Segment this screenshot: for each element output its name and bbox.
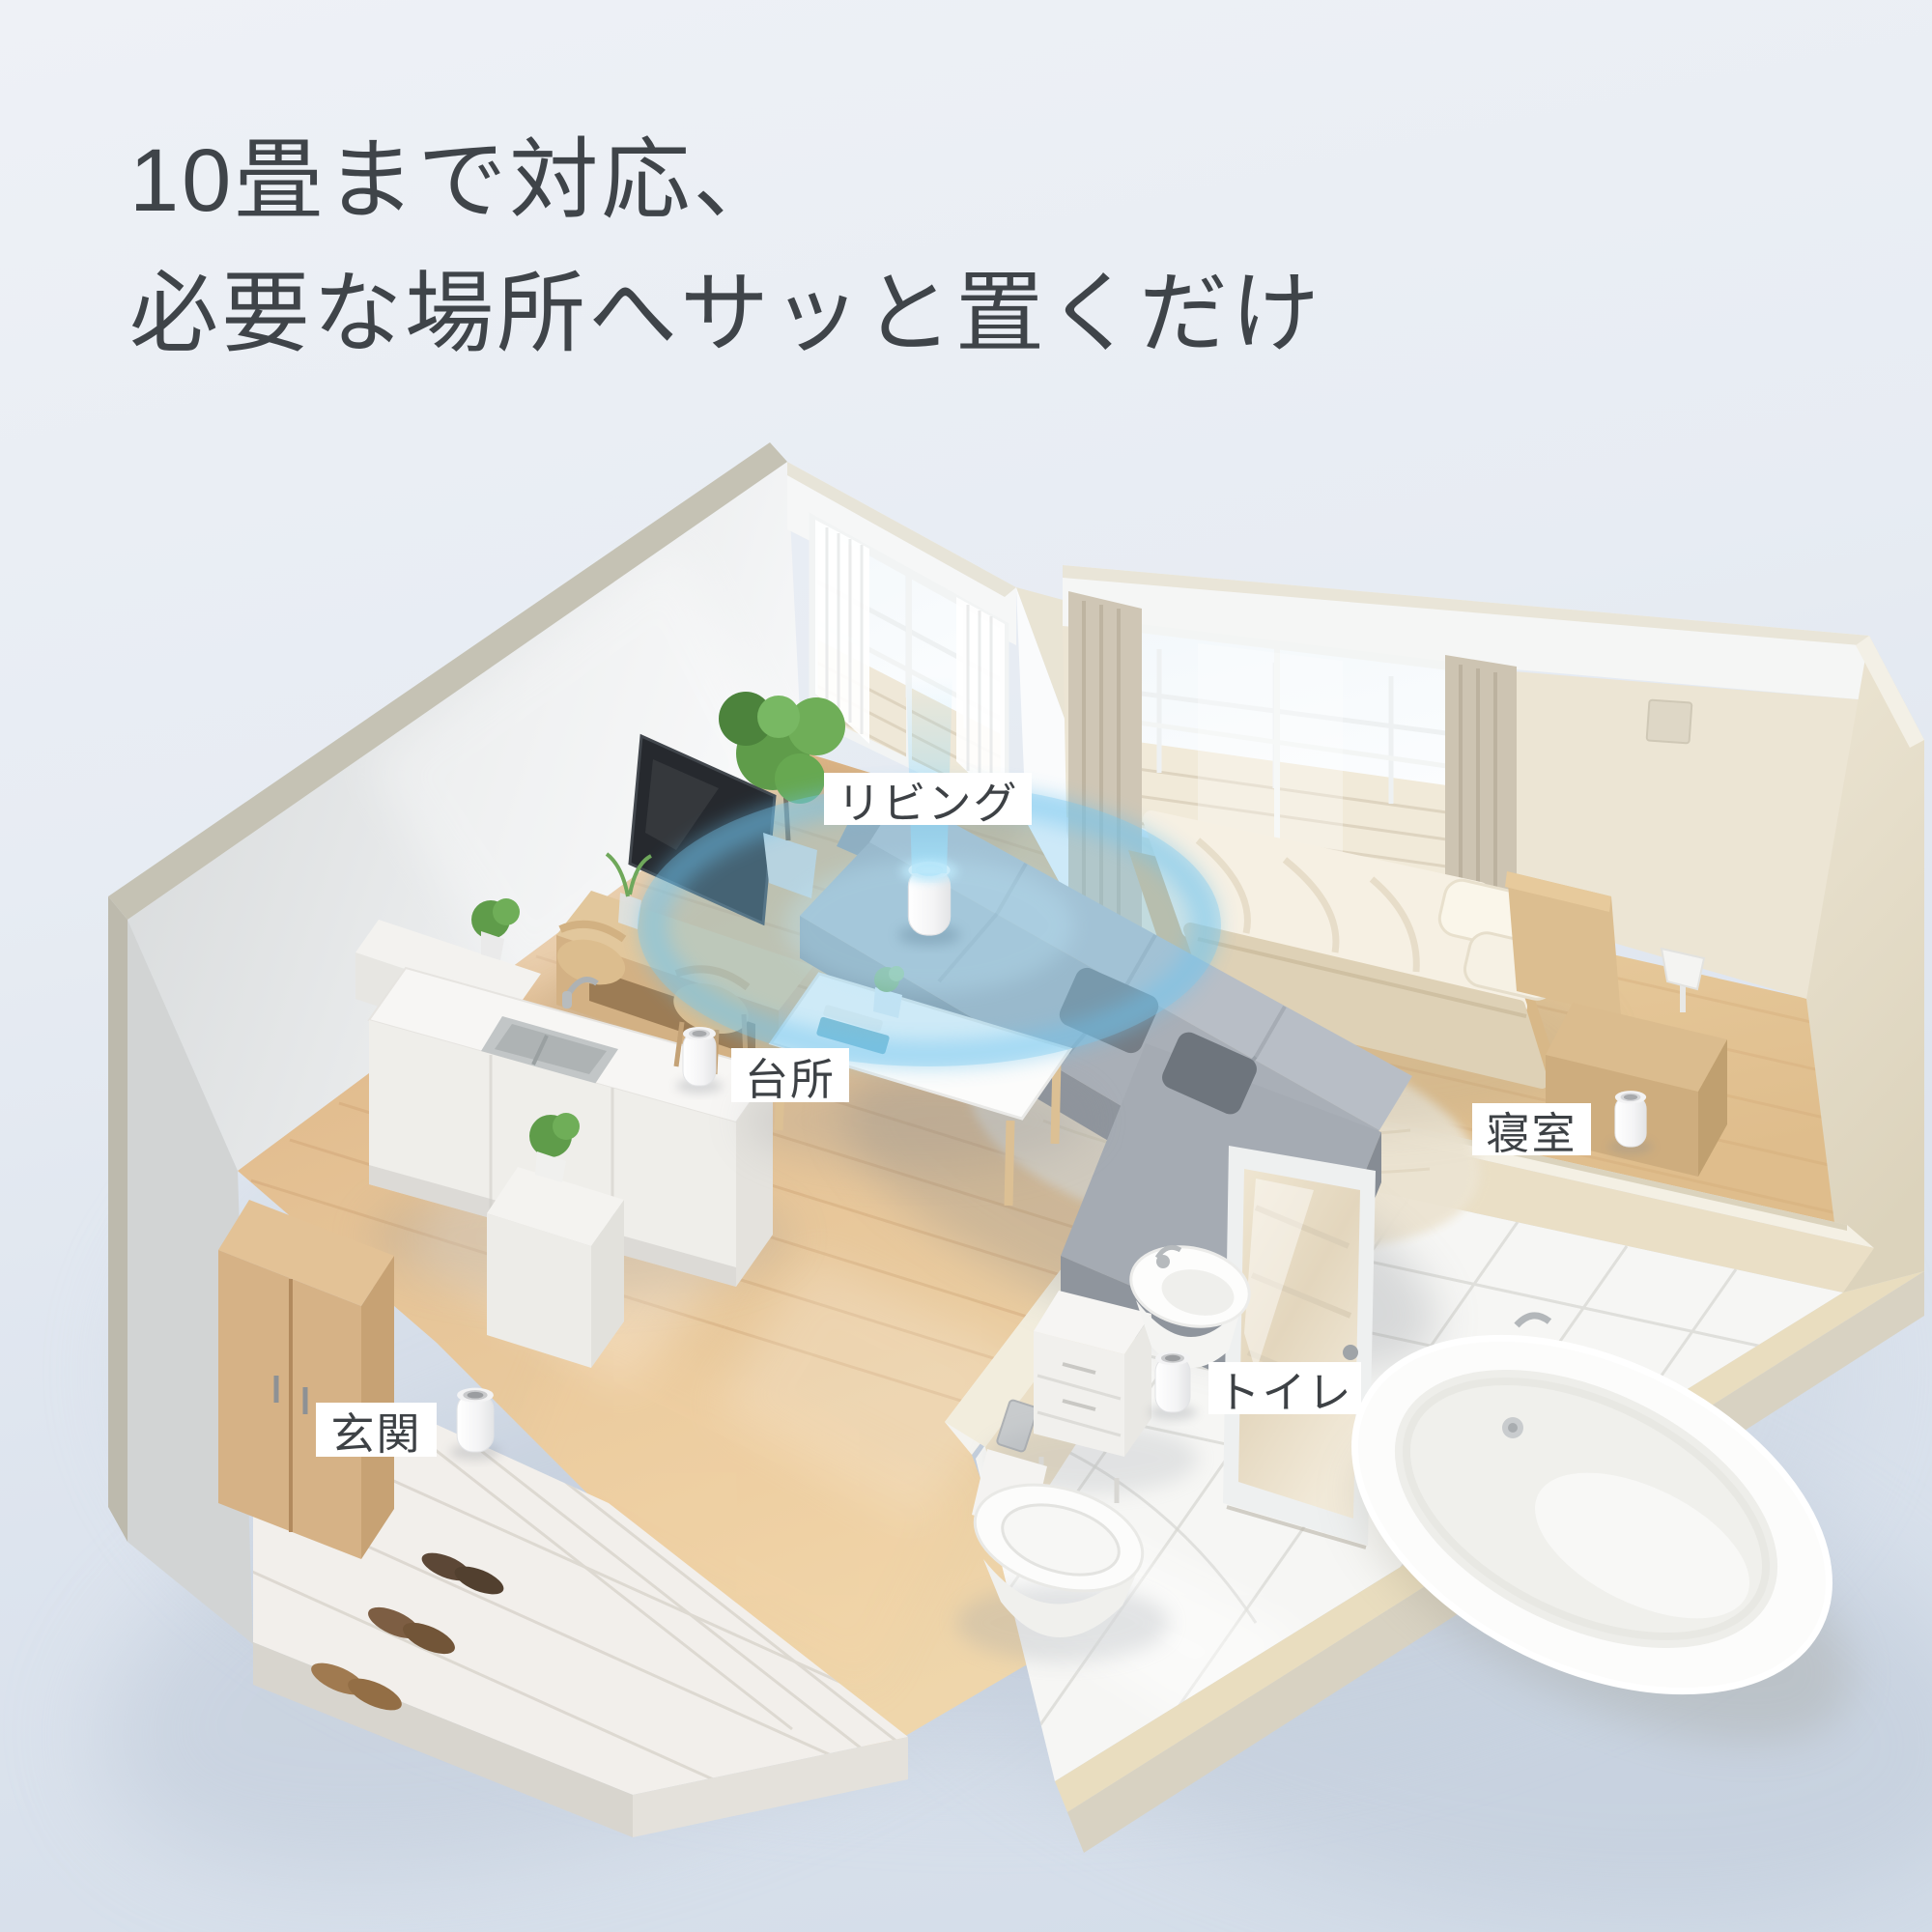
page-title: 10畳まで対応、 必要な場所へサッと置くだけ xyxy=(129,114,1322,381)
mirror-door xyxy=(1223,1146,1376,1548)
room-label-entrance: 玄関 xyxy=(316,1403,437,1457)
living-window-wall xyxy=(787,462,1016,810)
shoe-cabinet xyxy=(218,1200,394,1559)
room-label-bedroom: 寝室 xyxy=(1472,1103,1591,1155)
page-title-line1: 10畳まで対応、 xyxy=(129,114,1322,247)
promo-page: 10畳まで対応、 必要な場所へサッと置くだけ リビング 台所 寝室 トイレ 玄関 xyxy=(0,0,1932,1932)
room-label-kitchen: 台所 xyxy=(731,1048,849,1102)
room-label-toilet: トイレ xyxy=(1208,1362,1361,1414)
room-label-living: リビング xyxy=(824,773,1032,825)
wall-vent-icon xyxy=(1647,700,1692,744)
page-title-line2: 必要な場所へサッと置くだけ xyxy=(129,247,1322,381)
